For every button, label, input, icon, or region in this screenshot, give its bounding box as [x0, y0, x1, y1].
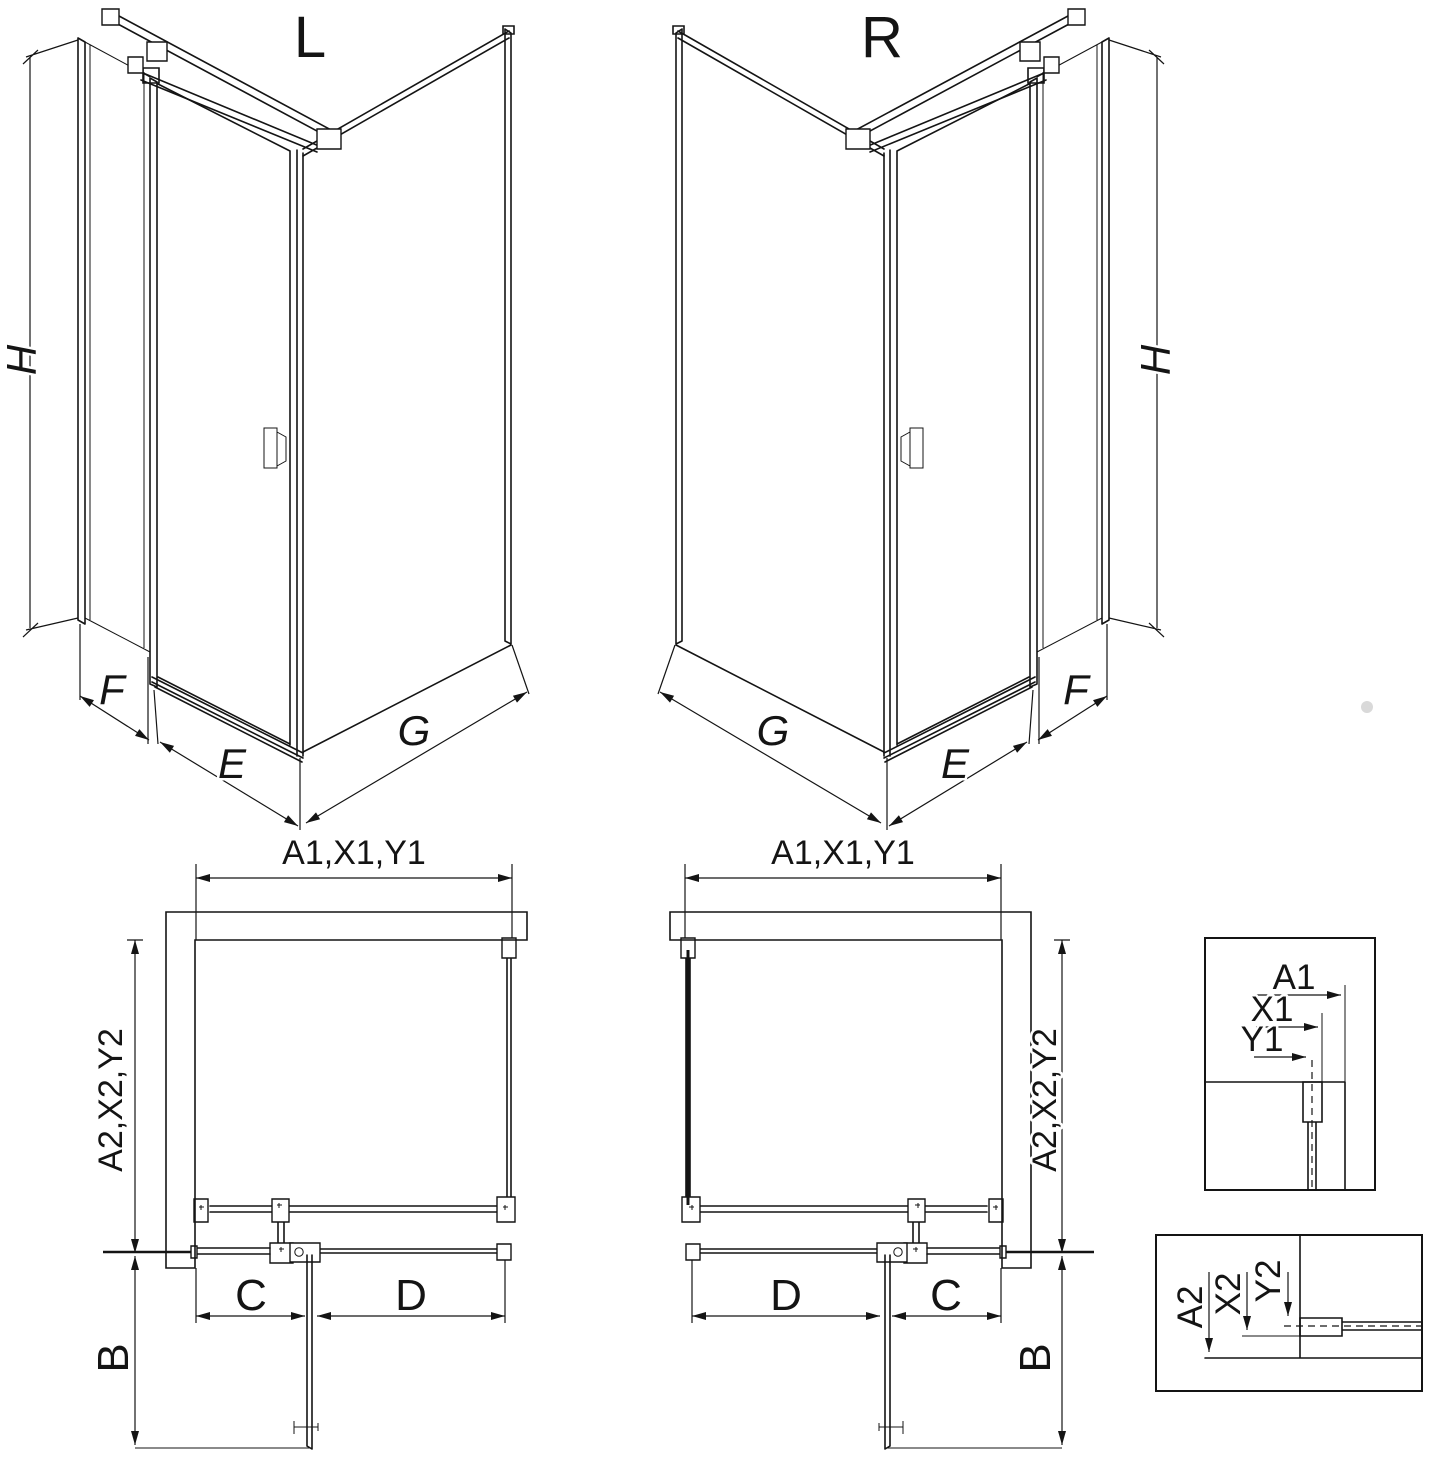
plan-stabilizer-bar — [210, 1206, 497, 1243]
plan-right-door-width-label: C — [930, 1271, 962, 1320]
plan-left-depth-label: A2,X2,Y2 — [92, 1028, 130, 1172]
plan-left-door-width-label: C — [235, 1271, 267, 1320]
detail1-y1-label: Y1 — [1241, 1020, 1284, 1059]
detail1-wall-section — [1205, 1082, 1345, 1190]
iso-right-return-wall-label: G — [757, 707, 790, 754]
iso-corner-post — [297, 150, 303, 756]
detail2-a2-label: A2 — [1171, 1286, 1210, 1329]
print-artifact-dot — [1361, 701, 1373, 713]
iso-left-height-label: H — [0, 344, 45, 375]
variant-left-title: L — [294, 5, 326, 70]
drawing-sheet: L R H F E G H G E F A1,X1,Y1 A2,X2,Y2 C … — [0, 0, 1430, 1460]
iso-side-panel-glass — [85, 42, 150, 652]
shower-enclosure-technical-drawing: L R H F E G H G E F A1,X1,Y1 A2,X2,Y2 C … — [0, 0, 1430, 1460]
detail2-y2-label: Y2 — [1249, 1260, 1288, 1303]
plan-right-opening-label: B — [1011, 1343, 1060, 1372]
iso-left-return-wall-label: G — [398, 707, 431, 754]
detail1-reference-lines — [1322, 985, 1345, 1082]
plan-left-opening-label: B — [89, 1343, 138, 1372]
plan-right-width-label: A1,X1,Y1 — [771, 834, 915, 872]
iso-left-side-panel-label: F — [99, 666, 127, 713]
iso-right-height-label: H — [1132, 344, 1179, 375]
plan-door-open — [307, 1255, 312, 1449]
plan-door-handle — [294, 1421, 318, 1434]
iso-door-glass — [158, 84, 290, 745]
plan-bottom-bar — [197, 1248, 497, 1254]
plan-stabilizer-connectors — [194, 938, 516, 1263]
plan-left-hardware-geometry — [103, 864, 516, 1449]
detail2-x2-label: X2 — [1209, 1273, 1248, 1316]
plan-right-fixed-width-label: D — [770, 1271, 802, 1320]
plan-left-width-label: A1,X1,Y1 — [282, 834, 426, 872]
iso-height-dim — [23, 40, 78, 637]
iso-door-handle — [264, 428, 286, 468]
plan-right-depth-label: A2,X2,Y2 — [1026, 1028, 1064, 1172]
plan-right-wall-hatched — [670, 912, 1031, 1268]
variant-right-title: R — [861, 5, 903, 70]
iso-g-dim-extensions — [512, 645, 529, 694]
iso-door-hinge-profile — [143, 68, 159, 687]
detail2-wall-profile — [1300, 1318, 1422, 1336]
iso-right-side-panel-label: F — [1063, 666, 1091, 713]
iso-wall-profile — [78, 38, 85, 624]
iso-right-door-label: E — [941, 740, 970, 787]
plan-left-wall-hatched — [166, 912, 527, 1268]
iso-left-door-label: E — [218, 740, 247, 787]
plan-fixed-glass — [507, 945, 511, 1207]
plan-left-fixed-width-label: D — [395, 1271, 427, 1320]
plan-connector-screws — [199, 1203, 508, 1252]
